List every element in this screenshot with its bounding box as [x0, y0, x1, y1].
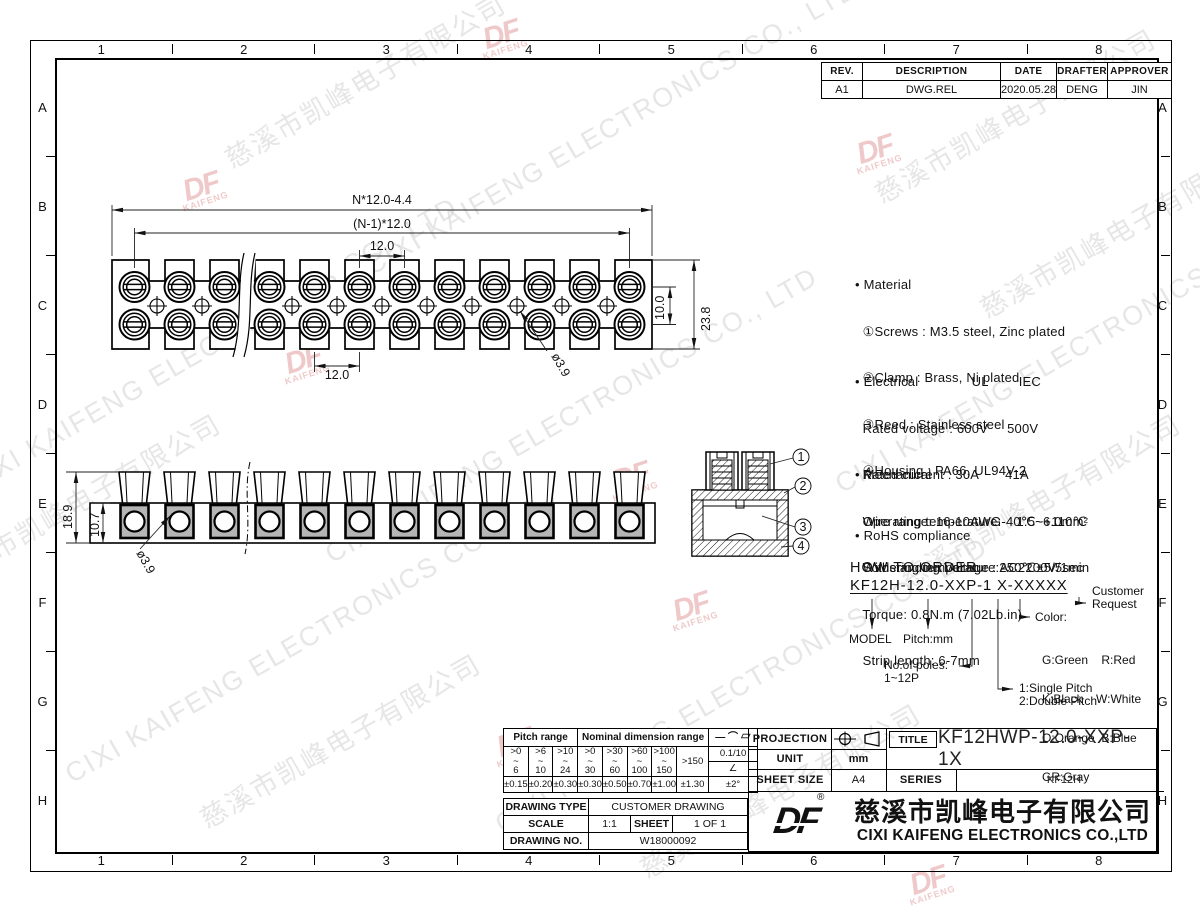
- callout-2: 2: [800, 479, 807, 493]
- dim-hole-top: ø3.9: [548, 351, 573, 380]
- range-cell: >100~150: [652, 747, 677, 777]
- dim-pitch-bottom: 12.0: [325, 368, 349, 382]
- sheet-value: 1 OF 1: [673, 816, 748, 833]
- rev-header: APPROVER: [1107, 63, 1171, 81]
- callout-4: 4: [798, 539, 805, 553]
- company-name-cn: 慈溪市凯峰电子有限公司: [849, 798, 1156, 827]
- title-label: TITLE: [889, 731, 937, 748]
- color-option: G:Green R:Red: [1042, 654, 1141, 667]
- order-color-label: Color:: [1035, 611, 1067, 624]
- tolerance-value: ±0.20: [528, 777, 553, 793]
- spec-line: • Mechanical: [855, 467, 1087, 483]
- drawing-sheet: 慈溪市凯峰电子有限公司 CIXI KAIFENG ELECTRONICS CO.…: [0, 0, 1200, 910]
- order-pitch-type-2: 2:Double Pitch: [1019, 695, 1097, 708]
- sheet-label: SHEET: [631, 816, 673, 833]
- order-poles-range: 1~12P: [884, 672, 919, 685]
- rev-header: DESCRIPTION: [863, 63, 1001, 81]
- unit-value: mm: [831, 749, 887, 770]
- company-name-en: CIXI KAIFENG ELECTRONICS CO.,LTD: [849, 827, 1156, 844]
- drawing-type-value: CUSTOMER DRAWING: [589, 799, 748, 816]
- drawing-no-label: DRAWING NO.: [504, 833, 589, 850]
- range-cell: >60~100: [627, 747, 652, 777]
- nominal-range-header: Nominal dimension range: [578, 729, 709, 747]
- unit-label: UNIT: [749, 749, 832, 770]
- rev-cell: JIN: [1107, 81, 1171, 99]
- spec-line: • Material: [855, 277, 1065, 293]
- drawing-title: KF12HWP-12.0-XXP-1X: [938, 729, 1153, 769]
- tolerance-value: ±0.70: [627, 777, 652, 793]
- rev-cell: DWG.REL: [863, 81, 1001, 99]
- spec-rohs: • RoHS compliance: [855, 528, 971, 544]
- title-block: PROJECTION UNIT mm SHEET SIZE A4 SERIES …: [748, 728, 1157, 852]
- range-cell: >0~6: [504, 747, 529, 777]
- rev-header: DRAFTER: [1057, 63, 1108, 81]
- top-view: [112, 253, 652, 357]
- company-logo: DF®: [749, 800, 849, 842]
- rev-cell: DENG: [1057, 81, 1108, 99]
- callout-1: 1: [798, 450, 805, 464]
- section-tower: [742, 452, 774, 490]
- dim-height-total: 18.9: [61, 505, 75, 529]
- rev-cell: A1: [822, 81, 863, 99]
- callout-3: 3: [800, 520, 807, 534]
- range-cell-last: >150: [677, 747, 709, 777]
- scale-label: SCALE: [504, 816, 589, 833]
- revision-header-row: REV. DESCRIPTION DATE DRAFTER APPROVER: [822, 63, 1172, 81]
- dim-hole-side: ø3.9: [133, 548, 158, 577]
- scale-value: 1:1: [589, 816, 631, 833]
- order-pitch-label: Pitch:mm: [903, 633, 953, 646]
- projection-label: PROJECTION: [749, 729, 832, 750]
- rev-header: REV.: [822, 63, 863, 81]
- sheet-size-label: SHEET SIZE: [749, 769, 832, 792]
- drawing-no-value: W18000092: [589, 833, 748, 850]
- range-cell: >6~10: [528, 747, 553, 777]
- range-cell: >30~60: [602, 747, 627, 777]
- range-cell: >0~30: [578, 747, 603, 777]
- order-code: KF12H-12.0-XXP-1 X-XXXXX: [850, 577, 1068, 594]
- revision-row: A1 DWG.REL 2020.05.28 DENG JIN: [822, 81, 1172, 99]
- range-cell: >10~24: [553, 747, 578, 777]
- registered-mark-icon: ®: [817, 792, 824, 803]
- rev-cell: 2020.05.28: [1001, 81, 1057, 99]
- order-model-label: MODEL: [849, 633, 892, 646]
- series-value: KF12H: [956, 769, 1164, 792]
- company-names: 慈溪市凯峰电子有限公司 CIXI KAIFENG ELECTRONICS CO.…: [849, 798, 1156, 844]
- pitch-range-header: Pitch range: [504, 729, 578, 747]
- title-area: TITLE KF12HWP-12.0-XXP-1X: [886, 729, 1156, 770]
- spec-line: Rated voltage : 600V 500V: [855, 421, 1089, 437]
- revision-table: REV. DESCRIPTION DATE DRAFTER APPROVER A…: [821, 62, 1172, 99]
- tolerance-value: ±0.30: [578, 777, 603, 793]
- df-logo-icon: DF: [771, 800, 820, 842]
- spec-line: ①Screws : M3.5 steel, Zinc plated: [855, 324, 1065, 340]
- series-label: SERIES: [886, 769, 957, 792]
- projection-symbol: [831, 729, 887, 750]
- dim-height-body: 10.7: [88, 513, 102, 537]
- section-view: [692, 452, 788, 556]
- dim-n-total: N*12.0-4.4: [352, 193, 412, 207]
- company-block: DF® 慈溪市凯峰电子有限公司 CIXI KAIFENG ELECTRONICS…: [749, 791, 1156, 851]
- spec-line: Operating temperature:-40℃~+110℃: [855, 514, 1087, 530]
- tolerance-value: ±0.15: [504, 777, 529, 793]
- drawing-info-table: DRAWING TYPE CUSTOMER DRAWING SCALE 1:1 …: [503, 798, 748, 850]
- dim-pitch-top: 12.0: [370, 239, 394, 253]
- dim-row-gap: 10.0: [653, 296, 667, 320]
- sheet-size-value: A4: [831, 769, 887, 792]
- order-heading: HOW TO ORDER: [850, 560, 977, 576]
- dim-width-total: 23.8: [699, 307, 713, 331]
- tolerance-value: ±1.00: [652, 777, 677, 793]
- order-customer-2: Request: [1092, 598, 1137, 611]
- tolerance-value: ±0.50: [602, 777, 627, 793]
- side-view: [90, 462, 655, 554]
- tolerance-value: ±1.30: [677, 777, 709, 793]
- drawing-type-label: DRAWING TYPE: [504, 799, 589, 816]
- rev-header: DATE: [1001, 63, 1057, 81]
- tolerance-value: ±0.30: [553, 777, 578, 793]
- spec-line: • Electrical UL IEC: [855, 374, 1089, 390]
- tolerance-table: Pitch range Nominal dimension range — ⌒ …: [503, 728, 758, 793]
- section-tower: [706, 452, 738, 490]
- dim-n-pitch: (N-1)*12.0: [353, 217, 411, 231]
